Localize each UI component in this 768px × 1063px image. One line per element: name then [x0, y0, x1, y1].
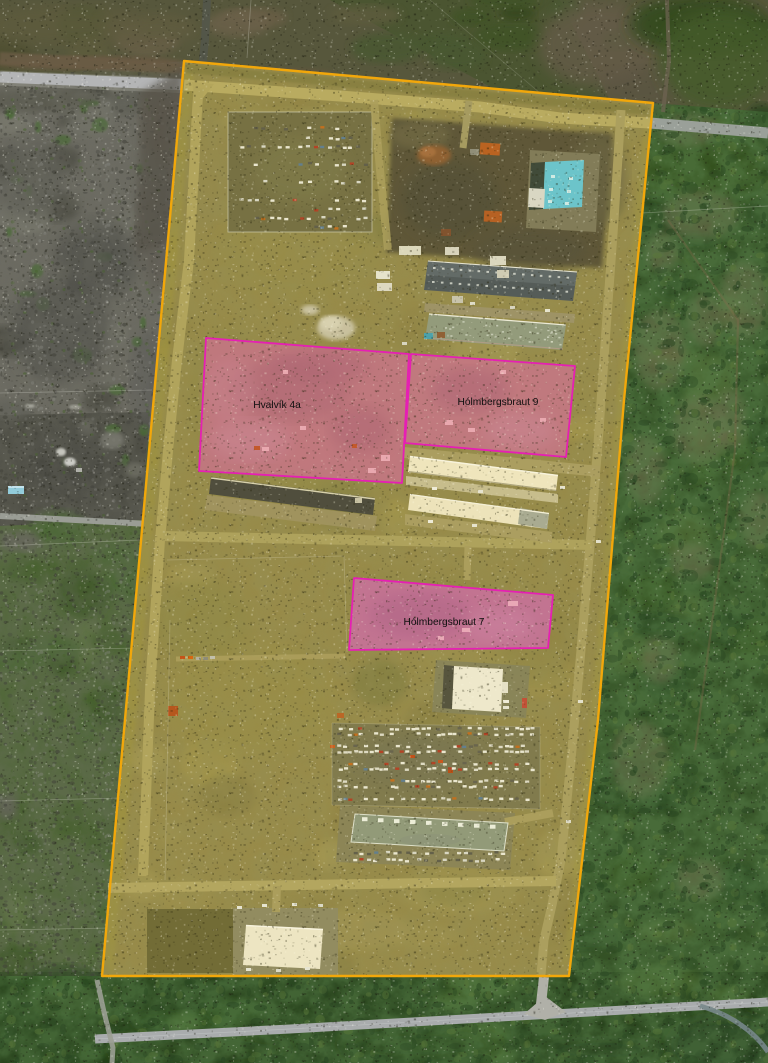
svg-text:Hvalvík 4a: Hvalvík 4a — [253, 400, 301, 411]
svg-text:Hólmbergsbraut 9: Hólmbergsbraut 9 — [458, 397, 539, 408]
svg-text:Hólmbergsbraut 7: Hólmbergsbraut 7 — [404, 617, 485, 628]
